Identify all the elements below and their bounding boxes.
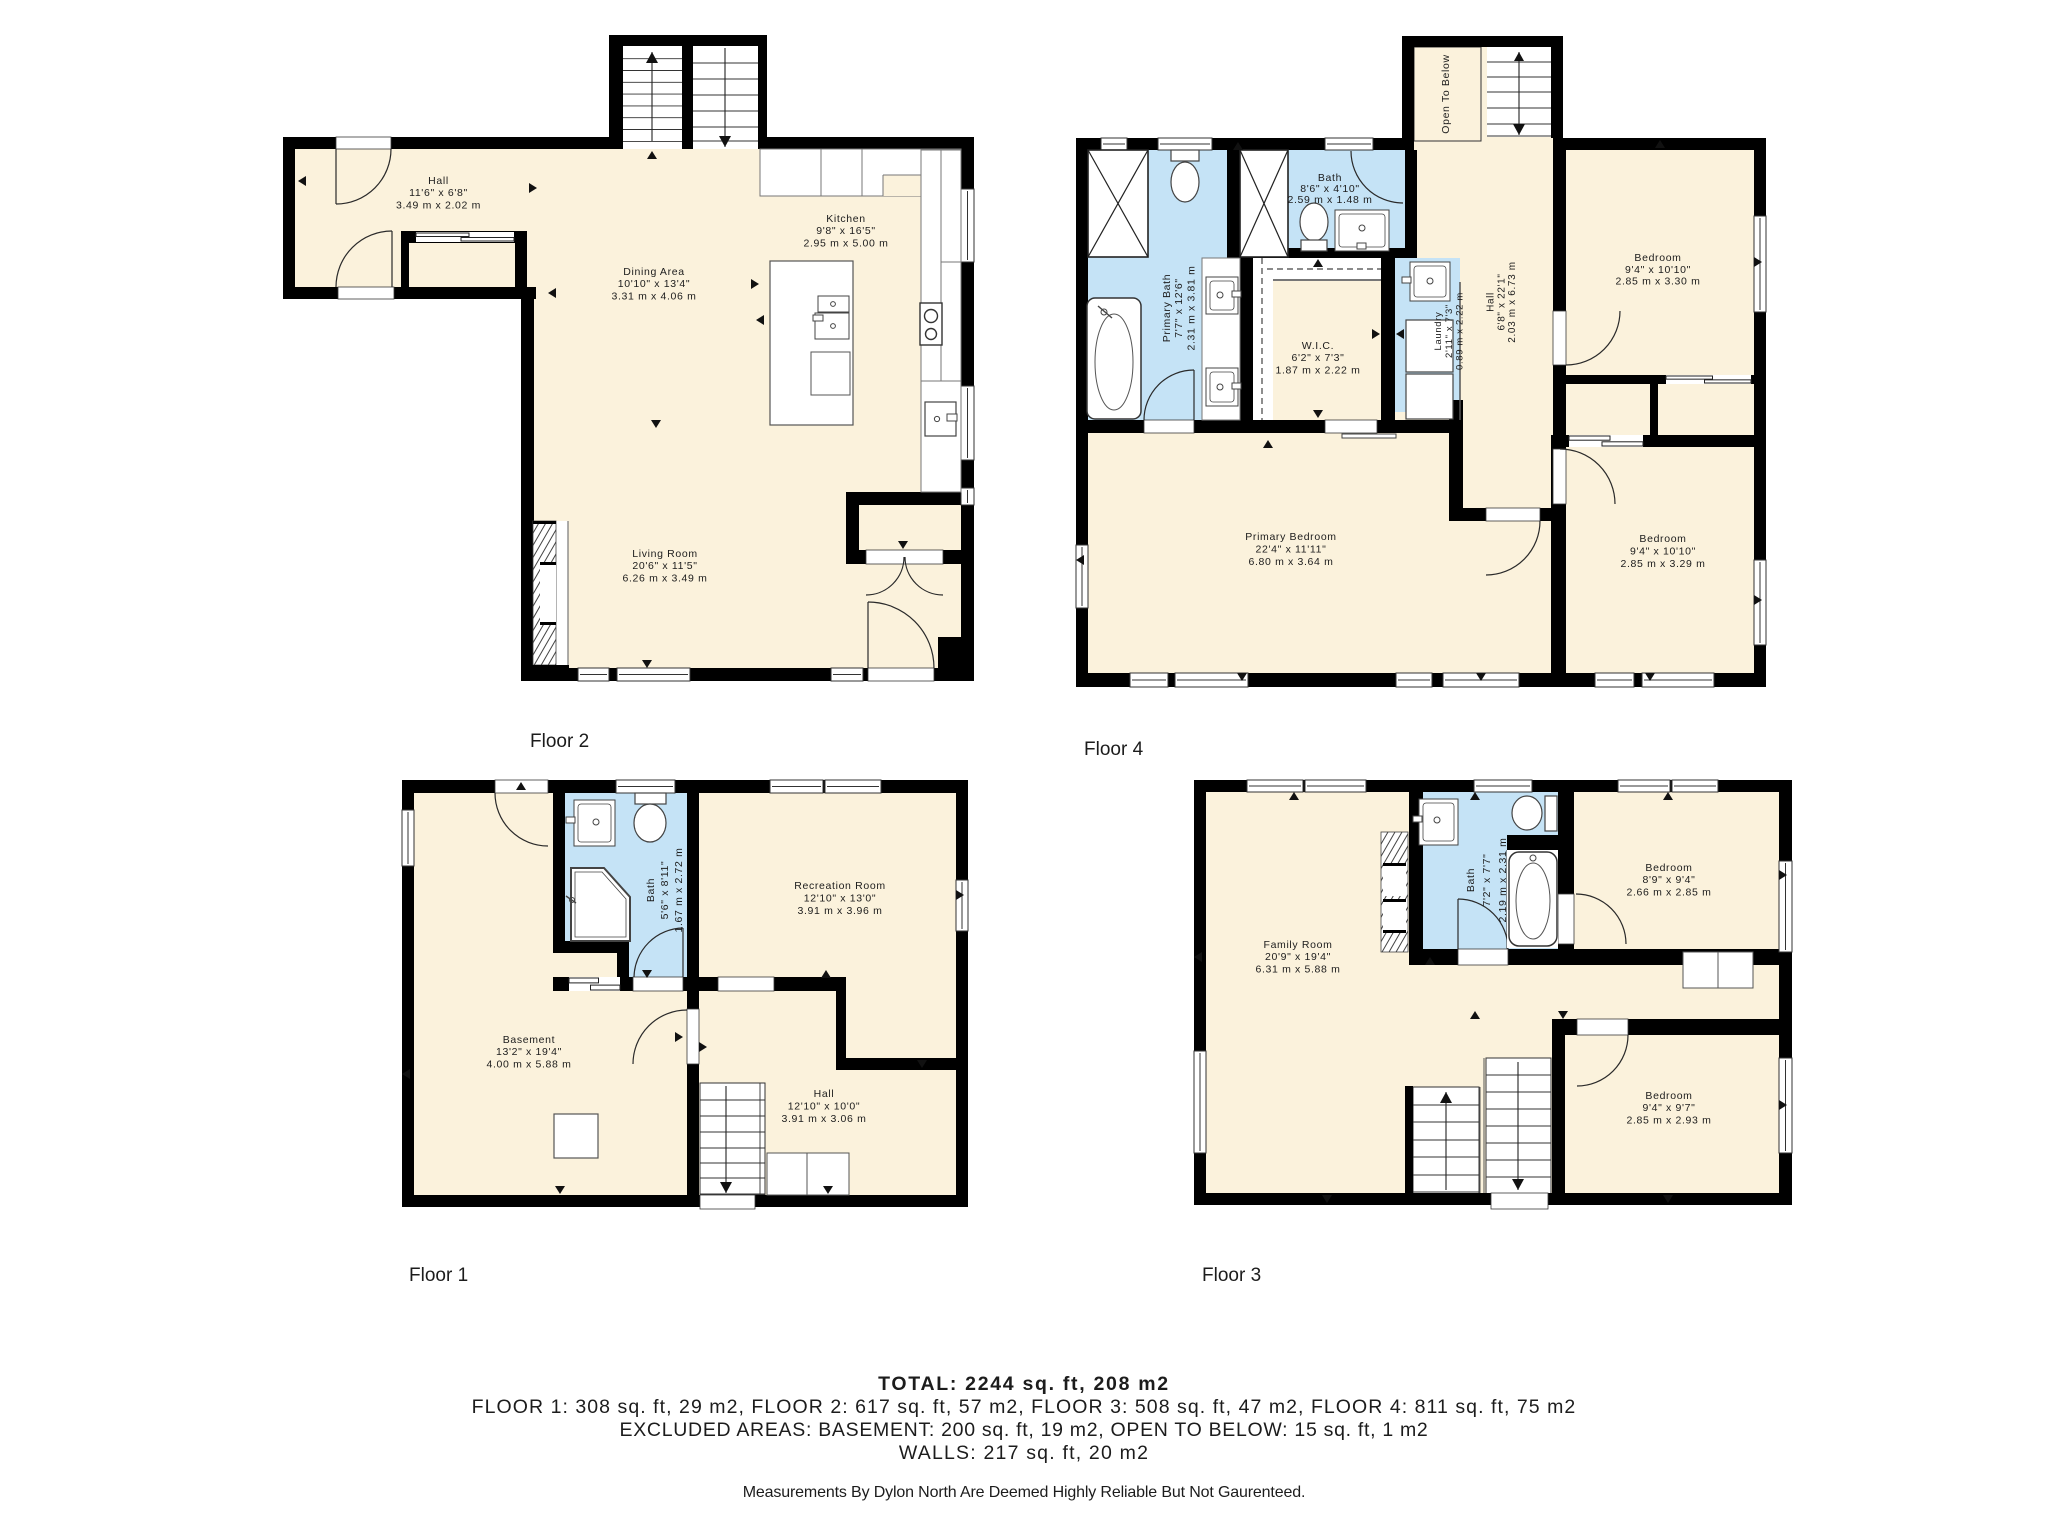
svg-text:6.31 m x 5.88 m: 6.31 m x 5.88 m xyxy=(1255,964,1340,976)
svg-text:0.89 m x 2.22 m: 0.89 m x 2.22 m xyxy=(1455,292,1466,370)
svg-text:8'9" x 9'4": 8'9" x 9'4" xyxy=(1642,874,1695,886)
svg-text:Bedroom: Bedroom xyxy=(1645,862,1692,874)
svg-text:9'4" x 9'7": 9'4" x 9'7" xyxy=(1642,1102,1695,1114)
svg-text:Primary Bedroom: Primary Bedroom xyxy=(1245,531,1336,543)
svg-text:Floor 2: Floor 2 xyxy=(530,731,589,752)
svg-text:Bedroom: Bedroom xyxy=(1645,1090,1692,1102)
svg-text:Measurements By Dylon North Ar: Measurements By Dylon North Are Deemed H… xyxy=(743,1484,1306,1501)
svg-text:2.85 m x 3.29 m: 2.85 m x 3.29 m xyxy=(1620,558,1705,570)
svg-text:6.26 m x 3.49 m: 6.26 m x 3.49 m xyxy=(622,572,707,584)
svg-text:Bath: Bath xyxy=(1465,868,1477,892)
svg-text:Bath: Bath xyxy=(645,878,657,902)
svg-text:2.95 m x 5.00 m: 2.95 m x 5.00 m xyxy=(803,237,888,249)
svg-text:9'8" x 16'5": 9'8" x 16'5" xyxy=(816,225,876,237)
svg-text:EXCLUDED AREAS: BASEMENT: 200: EXCLUDED AREAS: BASEMENT: 200 sq. ft, 19… xyxy=(620,1419,1429,1441)
svg-text:9'4" x 10'10": 9'4" x 10'10" xyxy=(1625,264,1691,276)
svg-text:Family Room: Family Room xyxy=(1264,939,1333,951)
svg-text:2.85 m x 3.30 m: 2.85 m x 3.30 m xyxy=(1615,275,1700,287)
svg-text:2.03 m x 6.73 m: 2.03 m x 6.73 m xyxy=(1507,261,1518,342)
svg-text:Kitchen: Kitchen xyxy=(826,213,866,225)
svg-text:FLOOR 1: 308 sq. ft, 29 m2, FL: FLOOR 1: 308 sq. ft, 29 m2, FLOOR 2: 617… xyxy=(472,1396,1577,1418)
svg-text:6'8" x 22'1": 6'8" x 22'1" xyxy=(1496,273,1507,330)
svg-text:1.87 m x 2.22 m: 1.87 m x 2.22 m xyxy=(1275,364,1360,376)
svg-text:13'2" x 19'4": 13'2" x 19'4" xyxy=(496,1046,562,1058)
svg-text:Floor 1: Floor 1 xyxy=(409,1265,468,1286)
svg-text:12'10" x 13'0": 12'10" x 13'0" xyxy=(804,892,877,904)
svg-text:Floor 4: Floor 4 xyxy=(1084,739,1144,760)
svg-text:20'6" x 11'5": 20'6" x 11'5" xyxy=(632,560,697,572)
svg-text:Basement: Basement xyxy=(503,1034,555,1046)
svg-text:20'9" x 19'4": 20'9" x 19'4" xyxy=(1265,951,1331,963)
svg-text:Bedroom: Bedroom xyxy=(1639,533,1686,545)
svg-text:Primary Bath: Primary Bath xyxy=(1161,274,1173,342)
svg-text:Hall: Hall xyxy=(814,1088,835,1100)
svg-text:6.80 m x 3.64 m: 6.80 m x 3.64 m xyxy=(1248,556,1333,568)
svg-text:6'2" x 7'3": 6'2" x 7'3" xyxy=(1291,352,1344,364)
svg-text:Bedroom: Bedroom xyxy=(1634,252,1681,264)
svg-text:9'4" x 10'10": 9'4" x 10'10" xyxy=(1630,545,1696,557)
svg-text:2.31 m x 3.81 m: 2.31 m x 3.81 m xyxy=(1185,265,1197,350)
svg-text:2.66 m x 2.85 m: 2.66 m x 2.85 m xyxy=(1626,886,1711,898)
svg-text:Hall: Hall xyxy=(1486,292,1497,312)
svg-text:10'10" x 13'4": 10'10" x 13'4" xyxy=(618,278,691,290)
svg-text:WALLS: 217 sq. ft, 20 m2: WALLS: 217 sq. ft, 20 m2 xyxy=(899,1442,1149,1464)
svg-text:3.31 m x 4.06 m: 3.31 m x 4.06 m xyxy=(611,290,696,302)
svg-text:3.91 m x 3.96 m: 3.91 m x 3.96 m xyxy=(797,905,882,917)
svg-text:2'11" x 7'3": 2'11" x 7'3" xyxy=(1444,304,1455,358)
svg-text:Dining Area: Dining Area xyxy=(623,266,684,278)
svg-text:3.49 m x 2.02 m: 3.49 m x 2.02 m xyxy=(396,199,481,211)
svg-text:22'4" x 11'11": 22'4" x 11'11" xyxy=(1256,543,1327,555)
svg-text:Floor 3: Floor 3 xyxy=(1202,1265,1261,1286)
svg-text:11'6" x 6'8": 11'6" x 6'8" xyxy=(409,187,468,199)
svg-text:2.19 m x 2.31 m: 2.19 m x 2.31 m xyxy=(1497,837,1509,922)
svg-text:Laundry: Laundry xyxy=(1433,312,1444,351)
svg-text:12'10" x 10'0": 12'10" x 10'0" xyxy=(788,1100,861,1112)
svg-text:W.I.C.: W.I.C. xyxy=(1302,340,1334,352)
svg-text:TOTAL: 2244 sq. ft, 208 m2: TOTAL: 2244 sq. ft, 208 m2 xyxy=(878,1373,1170,1395)
svg-text:7'7" x 12'6": 7'7" x 12'6" xyxy=(1173,278,1185,338)
svg-text:2.59 m x 1.48 m: 2.59 m x 1.48 m xyxy=(1287,194,1372,206)
svg-text:2.85 m x 2.93 m: 2.85 m x 2.93 m xyxy=(1626,1114,1711,1126)
svg-text:Living Room: Living Room xyxy=(632,548,698,560)
svg-text:3.91 m x 3.06 m: 3.91 m x 3.06 m xyxy=(781,1113,866,1125)
svg-text:Hall: Hall xyxy=(428,175,449,187)
svg-text:Recreation Room: Recreation Room xyxy=(794,880,885,892)
svg-text:4.00 m x 5.88 m: 4.00 m x 5.88 m xyxy=(486,1058,571,1070)
svg-text:7'2" x 7'7": 7'2" x 7'7" xyxy=(1481,853,1493,906)
svg-text:1.67 m x 2.72 m: 1.67 m x 2.72 m xyxy=(673,847,685,932)
svg-text:5'6" x 8'11": 5'6" x 8'11" xyxy=(659,861,671,920)
svg-text:Open To Below: Open To Below xyxy=(1440,54,1452,133)
